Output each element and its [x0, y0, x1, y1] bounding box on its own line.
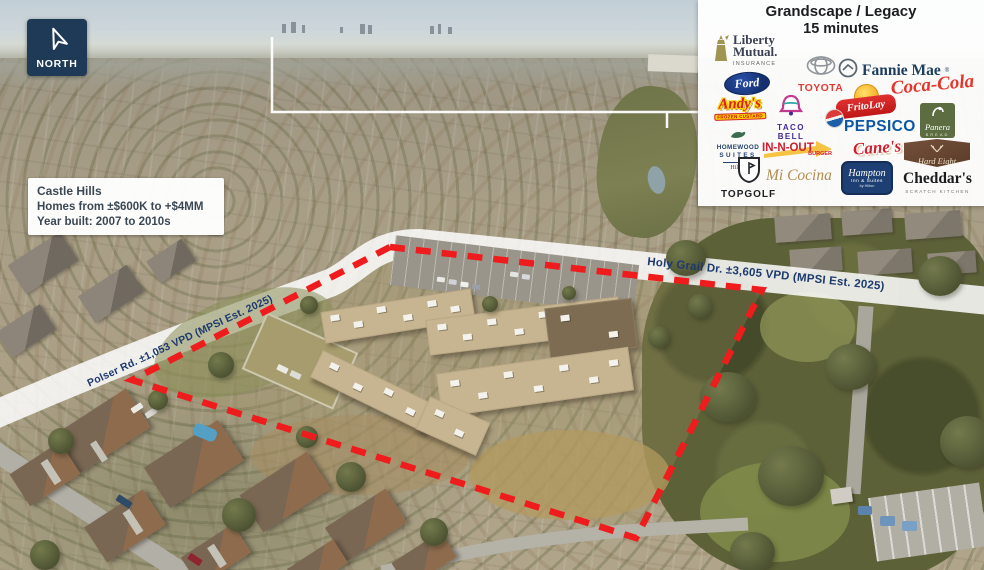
andys-banner: FROZEN CUSTARD — [714, 112, 766, 121]
tree — [700, 372, 756, 422]
mi-cocina-script: Mi Cocina — [766, 167, 832, 185]
north-arrow-icon — [45, 26, 69, 55]
topgolf-shield-icon — [737, 156, 761, 188]
logo-andys-frozen-custard: Andy's FROZEN CUSTARD — [714, 95, 766, 121]
skyline-tower — [360, 24, 365, 34]
info-line-year: Year built: 2007 to 2010s — [37, 215, 215, 230]
brand-logo-panel: Grandscape / Legacy 15 minutes Liberty M… — [698, 0, 984, 206]
panera-wordmark: Panera — [925, 123, 950, 132]
logo-hampton-inn: Hampton Inn & Suites by Hilton — [841, 161, 893, 195]
skyline-tower — [282, 24, 286, 33]
tree — [826, 344, 876, 390]
tree — [758, 446, 824, 506]
frito-lay-banner: FritoLay — [835, 93, 897, 119]
tree — [336, 462, 366, 492]
house-roof — [904, 210, 962, 240]
hard-eight-wordmark: Hard Eight — [918, 157, 956, 166]
shed — [830, 487, 853, 505]
canes-script: Cane's — [852, 136, 901, 159]
liberty-line3: INSURANCE — [733, 61, 777, 67]
hampton-line3: by Hilton — [860, 184, 875, 188]
panera-sub: BREAD — [926, 132, 950, 137]
panel-title: Grandscape / Legacy — [698, 3, 984, 20]
tree — [296, 426, 318, 448]
logo-cheddars: Cheddar's SCRATCH KITCHEN — [903, 170, 972, 194]
in-n-out-wordmark: IN-N-OUT — [762, 142, 814, 154]
tree — [730, 532, 775, 570]
tarp-structure — [902, 521, 917, 531]
antler-icon — [929, 139, 945, 157]
distant-building — [648, 54, 699, 73]
house-roof — [841, 208, 893, 235]
liberty-line2: Mutual. — [733, 46, 777, 58]
tarp-structure — [880, 516, 895, 526]
house-roof — [789, 246, 843, 274]
frito-lay-wordmark: FritoLay — [846, 99, 886, 115]
skyline-tower — [430, 26, 434, 34]
ford-oval-icon: Ford — [723, 70, 770, 96]
logo-liberty-mutual: Liberty Mutual. INSURANCE — [712, 34, 777, 69]
skyline-tower — [448, 27, 452, 34]
tree — [148, 390, 168, 410]
homewood-line1: HOMEWOOD — [717, 145, 759, 152]
castle-hills-info-box: Castle Hills Homes from ±$600K to +$4MM … — [28, 178, 224, 235]
info-title: Castle Hills — [37, 184, 215, 200]
north-badge: NORTH — [27, 19, 87, 76]
logo-ford: Ford — [724, 72, 770, 95]
tarp-structure — [858, 506, 872, 515]
info-line-price: Homes from ±$600K to +$4MM — [37, 200, 215, 215]
cheddars-sub: SCRATCH KITCHEN — [905, 189, 969, 194]
skyline-tower — [438, 24, 441, 34]
panera-mother-bread-icon — [931, 104, 945, 122]
tree — [300, 296, 318, 314]
parked-car — [437, 277, 446, 283]
fannie-mae-house-icon — [838, 58, 858, 83]
tree — [208, 352, 234, 378]
house-roof — [774, 213, 832, 243]
logo-mi-cocina: Mi Cocina — [766, 167, 832, 185]
parked-car — [522, 274, 531, 280]
dirt-field — [470, 430, 670, 520]
tree — [420, 518, 448, 546]
andys-script: Andy's — [718, 95, 761, 113]
logo-pepsico: PEPSICO — [844, 118, 916, 136]
north-label: NORTH — [36, 58, 77, 70]
parked-car — [460, 282, 469, 288]
toyota-emblem-icon — [806, 56, 836, 80]
tree — [222, 498, 256, 532]
statue-of-liberty-icon — [712, 34, 730, 69]
parked-car — [472, 284, 481, 290]
skyline-tower — [291, 22, 296, 33]
tree — [688, 294, 712, 318]
tree — [648, 326, 670, 348]
skyline-tower — [302, 25, 305, 33]
tree — [48, 428, 74, 454]
logo-raising-canes: Cane's — [852, 136, 901, 159]
in-n-out-sub: BURGER — [808, 151, 832, 157]
cheddars-wordmark: Cheddar's — [903, 170, 972, 188]
aerial-site-map: Holy Grail Dr. ±3,605 VPD (MPSI Est. 202… — [0, 0, 984, 570]
tree — [918, 256, 962, 296]
tree — [30, 540, 60, 570]
tree — [562, 286, 576, 300]
logo-panera: Panera BREAD — [920, 103, 955, 138]
hampton-line1: Hampton — [848, 169, 885, 179]
skyline-tower — [340, 27, 343, 33]
pepsico-wordmark: PEPSICO — [844, 118, 916, 136]
parked-car — [448, 279, 457, 285]
logo-taco-bell: TACO BELL — [777, 92, 805, 142]
taco-bell-bell-icon — [777, 92, 805, 123]
house-roof — [857, 248, 913, 276]
logo-frito-lay: FritoLay — [836, 84, 896, 120]
homewood-duck-icon — [729, 126, 747, 144]
topgolf-wordmark: TOPGOLF — [721, 189, 776, 200]
tree — [482, 296, 498, 312]
ford-wordmark: Ford — [734, 75, 760, 92]
logo-hard-eight-bbq: Hard Eight BBQ — [904, 139, 970, 167]
parked-car — [510, 271, 519, 277]
taco-bell-line1: TACO — [777, 124, 805, 132]
skyline-tower — [368, 25, 372, 34]
